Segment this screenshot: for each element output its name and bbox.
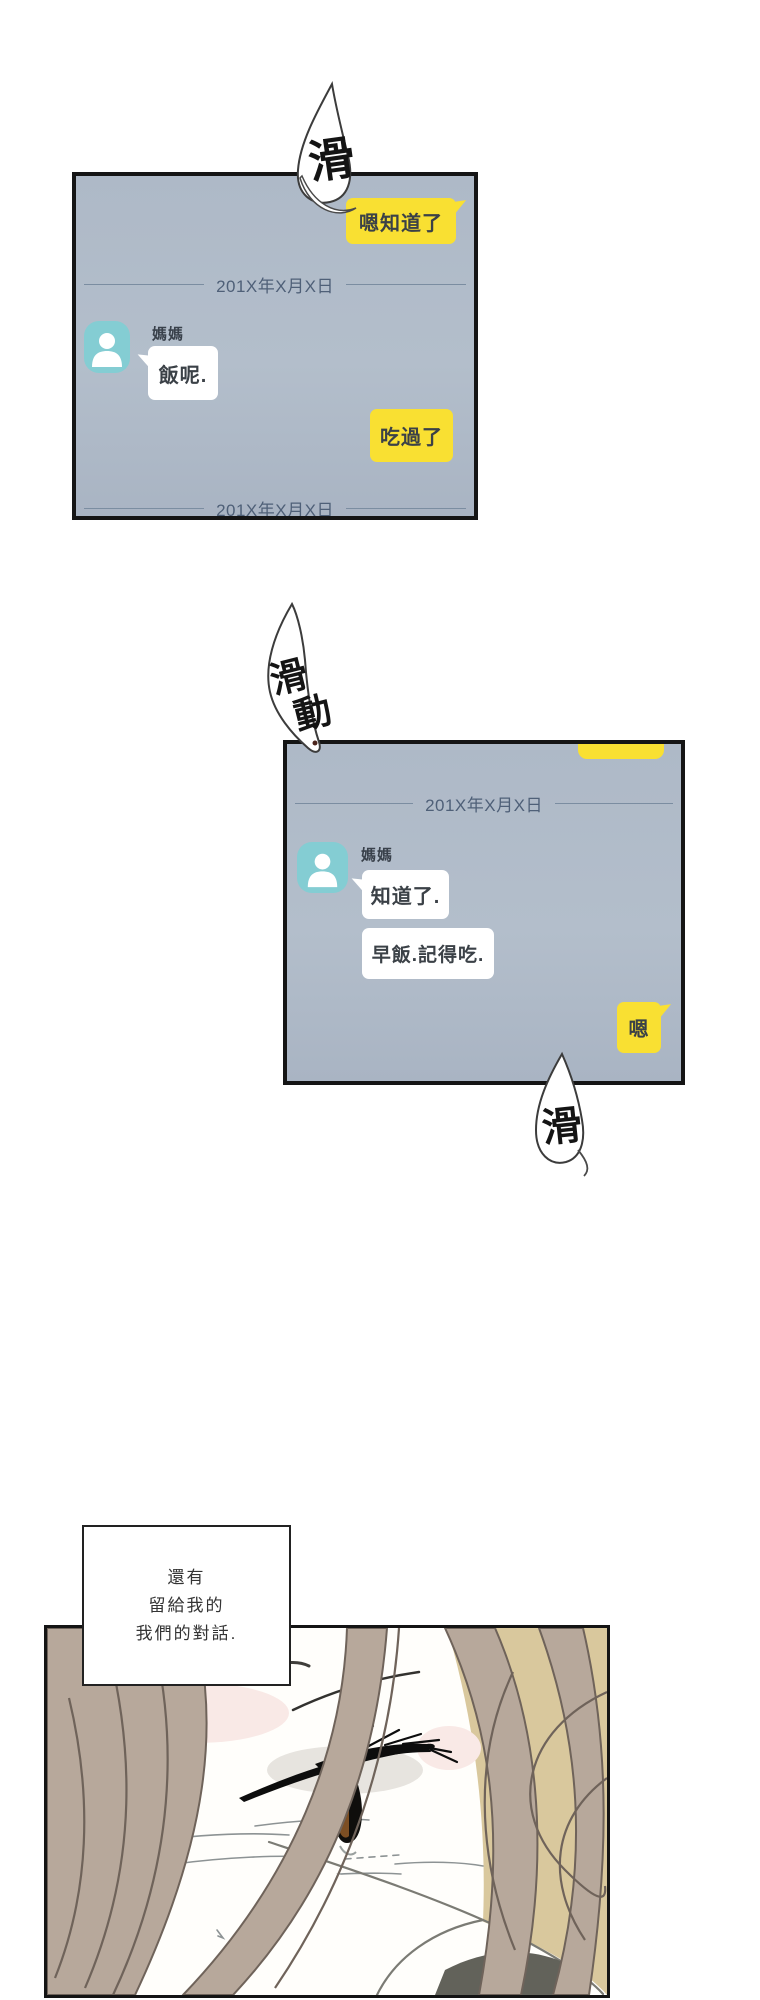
date-text: 201X年X月X日 (204, 496, 346, 521)
message-text: 吃過了 (380, 421, 443, 450)
sfx-slide-move-bubble: 滑 動 (262, 600, 350, 758)
caption-line: 留給我的 (149, 1592, 225, 1620)
date-divider: 201X年X月X日 (76, 270, 474, 298)
bubble-tail (453, 200, 468, 214)
sender-name: 媽媽 (361, 844, 393, 865)
person-icon (297, 842, 348, 893)
message-text: 嗯 (629, 1013, 650, 1042)
message-text: 早飯.記得吃. (372, 940, 485, 967)
date-divider-line (346, 284, 466, 285)
bubble-tail (350, 878, 363, 890)
avatar (84, 321, 130, 373)
caption-line: 我們的對話. (136, 1620, 238, 1648)
date-divider-line (84, 508, 204, 509)
message-text: 飯呢. (159, 359, 208, 388)
outgoing-message-bubble: 嗯 (617, 1002, 661, 1053)
caption-box: 還有 留給我的 我們的對話. (82, 1525, 291, 1686)
comic-page: 嗯知道了 201X年X月X日 媽媽 飯呢. 吃過了 201X年X月X日 (0, 0, 760, 2000)
person-icon (84, 321, 130, 373)
chat-screenshot-panel-1: 嗯知道了 201X年X月X日 媽媽 飯呢. 吃過了 201X年X月X日 (72, 172, 478, 520)
incoming-message-bubble: 早飯.記得吃. (362, 928, 494, 979)
sfx-text: 滑 (305, 130, 358, 190)
sfx-slide-bubble: 滑 (524, 1050, 602, 1178)
bubble-tail (136, 354, 149, 366)
date-text: 201X年X月X日 (413, 791, 555, 816)
date-text: 201X年X月X日 (204, 272, 346, 297)
chat-screenshot-panel-2: 201X年X月X日 媽媽 知道了. 早飯.記得吃. 嗯 (283, 740, 685, 1085)
outgoing-message-bubble-clipped (578, 744, 664, 759)
incoming-message-bubble: 飯呢. (148, 346, 218, 400)
date-divider: 201X年X月X日 (287, 789, 681, 817)
date-divider-line (295, 803, 413, 804)
avatar (297, 842, 348, 893)
sfx-text: 滑 (539, 1101, 584, 1152)
outgoing-message-bubble: 吃過了 (370, 409, 453, 462)
incoming-message-bubble: 知道了. (362, 870, 449, 919)
sfx-slide-bubble: 滑 (286, 80, 374, 214)
bubble-tail (658, 1004, 673, 1018)
date-divider: 201X年X月X日 (76, 494, 474, 520)
date-divider-line (555, 803, 673, 804)
sender-name: 媽媽 (152, 323, 184, 344)
date-divider-line (84, 284, 204, 285)
date-divider-line (346, 508, 466, 509)
caption-line: 還有 (168, 1564, 206, 1592)
message-text: 知道了. (371, 880, 441, 909)
